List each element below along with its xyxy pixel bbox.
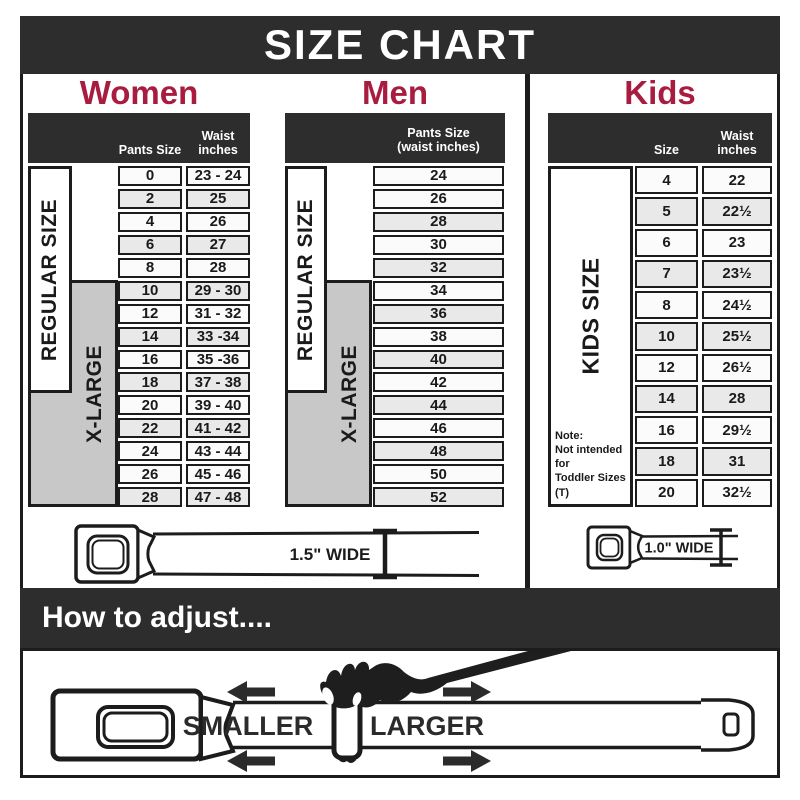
women-regular-label: REGULAR SIZE xyxy=(38,198,62,360)
table-row: 225 xyxy=(118,189,250,209)
waist-cell: 31 xyxy=(702,447,772,475)
size-cell: 4 xyxy=(635,166,698,194)
waist-cell: 47 - 48 xyxy=(186,487,250,507)
kids-size-table: Size Waist inches KIDS SIZE Note: Not in… xyxy=(548,113,772,507)
size-cell: 38 xyxy=(373,327,504,347)
waist-cell: 32½ xyxy=(702,479,772,507)
size-cell: 6 xyxy=(635,229,698,257)
size-cell: 26 xyxy=(373,189,504,209)
waist-cell: 24½ xyxy=(702,291,772,319)
size-cell: 14 xyxy=(635,385,698,413)
size-cell: 46 xyxy=(373,418,504,438)
size-cell: 18 xyxy=(118,372,182,392)
table-row: 1837 - 38 xyxy=(118,372,250,392)
size-cell: 16 xyxy=(118,350,182,370)
men-rows: 242628303234363840424446485052 xyxy=(373,166,504,507)
table-row: 623 xyxy=(635,229,772,257)
larger-label: LARGER xyxy=(370,711,484,741)
size-cell: 10 xyxy=(118,281,182,301)
women-pants-size-header: Pants Size xyxy=(118,143,182,158)
table-row: 2241 - 42 xyxy=(118,418,250,438)
table-row: 422 xyxy=(635,166,772,194)
kids-size-label: KIDS SIZE xyxy=(577,258,604,375)
table-row: 48 xyxy=(373,441,504,461)
hand-icon xyxy=(320,651,571,708)
table-row: 42 xyxy=(373,372,504,392)
table-row: 32 xyxy=(373,258,504,278)
size-cell: 8 xyxy=(118,258,182,278)
arrow-left-icon xyxy=(227,750,275,772)
table-row: 1226½ xyxy=(635,354,772,382)
waist-cell: 23 xyxy=(702,229,772,257)
table-row: 824½ xyxy=(635,291,772,319)
belt-tip-icon xyxy=(701,700,753,750)
waist-cell: 25½ xyxy=(702,322,772,350)
size-cell: 12 xyxy=(635,354,698,382)
size-cell: 2 xyxy=(118,189,182,209)
women-regular-box: REGULAR SIZE xyxy=(28,166,72,393)
men-xlarge-strip: X-LARGE xyxy=(327,280,372,507)
kids-size-box: KIDS SIZE Note: Not intended for Toddler… xyxy=(548,166,633,507)
table-row: 2032½ xyxy=(635,479,772,507)
arrow-right-icon xyxy=(443,681,491,703)
adjustment-diagram: SMALLER LARGER xyxy=(23,651,777,775)
seatbelt-buckle-icon xyxy=(588,527,642,568)
size-cell: 16 xyxy=(635,416,698,444)
waist-cell: 23½ xyxy=(702,260,772,288)
chart-content-area: Women Men Kids Pants Size Waist inches R… xyxy=(20,74,780,588)
size-cell: 44 xyxy=(373,395,504,415)
size-cell: 20 xyxy=(635,479,698,507)
size-cell: 14 xyxy=(118,327,182,347)
table-row: 1428 xyxy=(635,385,772,413)
kids-belt-width-label: 1.0" WIDE xyxy=(645,541,714,557)
men-table-header: Pants Size (waist inches) xyxy=(285,113,505,163)
women-table-header: Pants Size Waist inches xyxy=(28,113,250,163)
table-row: 1635 -36 xyxy=(118,350,250,370)
seatbelt-buckle-icon xyxy=(76,526,154,582)
table-row: 2443 - 44 xyxy=(118,441,250,461)
women-waist-header: Waist inches xyxy=(186,129,250,159)
waist-cell: 41 - 42 xyxy=(186,418,250,438)
waist-cell: 37 - 38 xyxy=(186,372,250,392)
table-row: 28 xyxy=(373,212,504,232)
arrow-right-icon xyxy=(443,750,491,772)
size-cell: 32 xyxy=(373,258,504,278)
waist-cell: 26½ xyxy=(702,354,772,382)
table-row: 426 xyxy=(118,212,250,232)
waist-cell: 27 xyxy=(186,235,250,255)
table-row: 26 xyxy=(373,189,504,209)
waist-cell: 45 - 46 xyxy=(186,464,250,484)
table-row: 38 xyxy=(373,327,504,347)
men-header-line1: Pants Size xyxy=(373,126,504,141)
women-size-table: Pants Size Waist inches REGULAR SIZE X-L… xyxy=(28,113,250,507)
size-cell: 26 xyxy=(118,464,182,484)
table-row: 2039 - 40 xyxy=(118,395,250,415)
size-cell: 20 xyxy=(118,395,182,415)
waist-cell: 35 -36 xyxy=(186,350,250,370)
table-row: 2847 - 48 xyxy=(118,487,250,507)
size-cell: 10 xyxy=(635,322,698,350)
table-row: 52 xyxy=(373,487,504,507)
waist-cell: 28 xyxy=(702,385,772,413)
table-row: 1231 - 32 xyxy=(118,304,250,324)
kids-size-header: Size xyxy=(635,143,698,158)
kids-note-line1: Note: xyxy=(555,429,630,443)
size-cell: 12 xyxy=(118,304,182,324)
size-cell: 4 xyxy=(118,212,182,232)
size-cell: 7 xyxy=(635,260,698,288)
kids-section-heading: Kids xyxy=(548,76,772,110)
size-cell: 48 xyxy=(373,441,504,461)
women-xlarge-label: X-LARGE xyxy=(83,345,107,443)
how-to-adjust-band: How to adjust.... xyxy=(20,588,780,648)
adult-belt-illustration: 1.5" WIDE xyxy=(62,518,482,588)
smaller-label: SMALLER xyxy=(183,711,314,741)
kids-note-line3: Toddler Sizes (T) xyxy=(555,471,630,500)
table-row: 50 xyxy=(373,464,504,484)
men-header-line2: (waist inches) xyxy=(373,140,504,155)
waist-cell: 26 xyxy=(186,212,250,232)
table-row: 24 xyxy=(373,166,504,186)
table-row: 34 xyxy=(373,281,504,301)
waist-cell: 43 - 44 xyxy=(186,441,250,461)
table-row: 30 xyxy=(373,235,504,255)
men-section-heading: Men xyxy=(285,76,505,110)
kids-note: Note: Not intended for Toddler Sizes (T) xyxy=(555,429,630,500)
kids-waist-header: Waist inches xyxy=(702,129,772,159)
size-cell: 22 xyxy=(118,418,182,438)
size-cell: 24 xyxy=(373,166,504,186)
adjustment-illustration: SMALLER LARGER xyxy=(20,648,780,778)
kids-table-header: Size Waist inches xyxy=(548,113,772,163)
size-cell: 52 xyxy=(373,487,504,507)
table-row: 522½ xyxy=(635,197,772,225)
page-title: SIZE CHART xyxy=(264,21,536,69)
size-cell: 36 xyxy=(373,304,504,324)
table-row: 1433 -34 xyxy=(118,327,250,347)
size-cell: 6 xyxy=(118,235,182,255)
kids-belt-illustration: 1.0" WIDE xyxy=(580,522,780,572)
table-row: 1025½ xyxy=(635,322,772,350)
size-cell: 34 xyxy=(373,281,504,301)
waist-cell: 39 - 40 xyxy=(186,395,250,415)
size-cell: 28 xyxy=(118,487,182,507)
men-pants-size-header: Pants Size (waist inches) xyxy=(373,126,504,156)
table-row: 40 xyxy=(373,350,504,370)
table-row: 1629½ xyxy=(635,416,772,444)
kids-note-line2: Not intended for xyxy=(555,443,630,472)
size-cell: 28 xyxy=(373,212,504,232)
table-row: 1831 xyxy=(635,447,772,475)
waist-cell: 23 - 24 xyxy=(186,166,250,186)
men-size-table: Pants Size (waist inches) REGULAR SIZE X… xyxy=(285,113,505,507)
women-xlarge-strip: X-LARGE xyxy=(72,280,118,507)
waist-cell: 28 xyxy=(186,258,250,278)
women-rows: 023 - 242254266278281029 - 301231 - 3214… xyxy=(118,166,250,507)
width-marker-icon xyxy=(373,531,397,577)
size-cell: 42 xyxy=(373,372,504,392)
waist-cell: 29 - 30 xyxy=(186,281,250,301)
table-row: 1029 - 30 xyxy=(118,281,250,301)
men-xlarge-label: X-LARGE xyxy=(338,345,362,443)
table-row: 828 xyxy=(118,258,250,278)
size-chart-title-bar: SIZE CHART xyxy=(20,16,780,74)
size-cell: 24 xyxy=(118,441,182,461)
women-section-heading: Women xyxy=(29,76,249,110)
table-row: 723½ xyxy=(635,260,772,288)
waist-cell: 29½ xyxy=(702,416,772,444)
size-cell: 40 xyxy=(373,350,504,370)
table-row: 627 xyxy=(118,235,250,255)
waist-cell: 22½ xyxy=(702,197,772,225)
table-row: 2645 - 46 xyxy=(118,464,250,484)
size-cell: 5 xyxy=(635,197,698,225)
table-row: 44 xyxy=(373,395,504,415)
waist-cell: 22 xyxy=(702,166,772,194)
waist-cell: 25 xyxy=(186,189,250,209)
men-regular-label: REGULAR SIZE xyxy=(294,198,318,360)
table-row: 36 xyxy=(373,304,504,324)
men-regular-box: REGULAR SIZE xyxy=(285,166,327,393)
waist-cell: 33 -34 xyxy=(186,327,250,347)
table-row: 023 - 24 xyxy=(118,166,250,186)
adult-belt-width-label: 1.5" WIDE xyxy=(290,545,371,564)
waist-cell: 31 - 32 xyxy=(186,304,250,324)
size-cell: 30 xyxy=(373,235,504,255)
table-row: 46 xyxy=(373,418,504,438)
section-divider xyxy=(525,74,530,588)
arrow-left-icon xyxy=(227,681,275,703)
size-cell: 18 xyxy=(635,447,698,475)
size-cell: 50 xyxy=(373,464,504,484)
size-cell: 8 xyxy=(635,291,698,319)
how-to-adjust-heading: How to adjust.... xyxy=(42,601,272,635)
size-cell: 0 xyxy=(118,166,182,186)
kids-rows: 422522½623723½824½1025½1226½14281629½183… xyxy=(635,166,772,507)
